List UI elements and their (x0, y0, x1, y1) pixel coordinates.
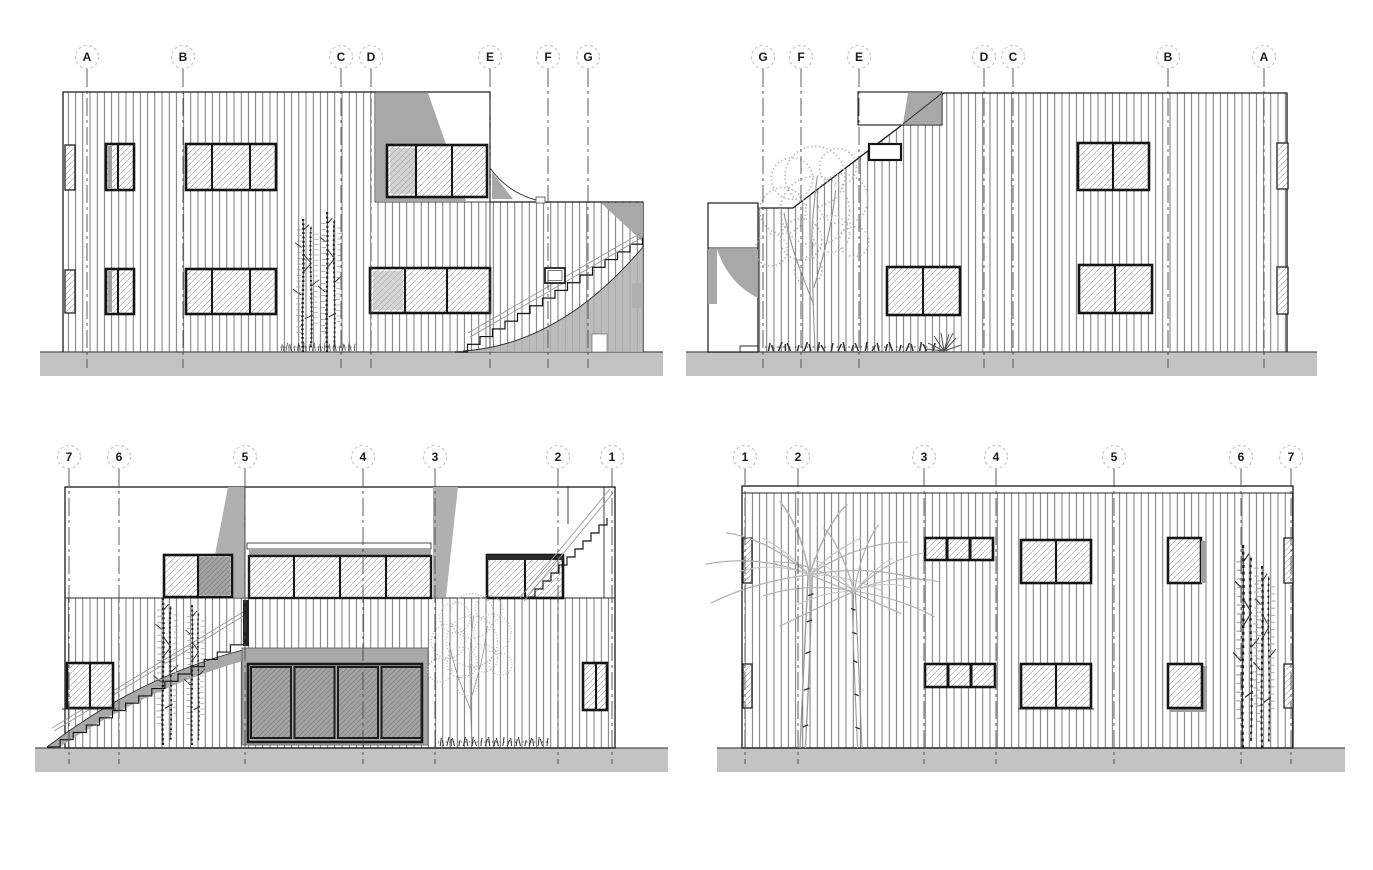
marker-label: A (83, 50, 92, 64)
marker-label: 4 (993, 450, 1000, 464)
window (1277, 267, 1288, 314)
window (925, 538, 993, 560)
marker-label: 5 (242, 450, 249, 464)
window (887, 267, 960, 315)
marker-label: E (486, 50, 494, 64)
marker-label: E (855, 50, 863, 64)
marker-label: 1 (742, 450, 749, 464)
marker-label: D (980, 50, 989, 64)
elevation-top-left: A B C D E F G (40, 46, 663, 377)
marker-label: F (544, 50, 551, 64)
window (1018, 664, 1094, 709)
elevation-top-right: G F E D C B A (686, 46, 1317, 377)
window (1284, 538, 1293, 583)
marker-label: 5 (1111, 450, 1118, 464)
marker-label: F (797, 50, 804, 64)
marker-label: C (1009, 50, 1018, 64)
window (1079, 265, 1152, 313)
elevation-bottom-left: 7 6 5 4 3 2 1 (35, 446, 668, 773)
marker-label: 3 (921, 450, 928, 464)
window (106, 269, 134, 314)
marker-label: 2 (555, 450, 562, 464)
window (1277, 143, 1288, 189)
marker-label: C (337, 50, 346, 64)
roof-edge-block (858, 92, 942, 125)
window (583, 663, 607, 710)
elevations-drawing: A B C D E F G (0, 0, 1373, 870)
window (387, 145, 487, 197)
marker-label: B (179, 50, 188, 64)
roof-notch (536, 197, 545, 203)
ground-band (686, 352, 1317, 376)
marker-label: 2 (795, 450, 802, 464)
marker-label: 1 (609, 450, 616, 464)
window (164, 555, 232, 597)
ground-band (35, 748, 668, 772)
marker-label: B (1164, 50, 1173, 64)
window (743, 664, 752, 708)
siding-wall (742, 493, 1293, 748)
elevation-sheet: A B C D E F G (0, 0, 1373, 870)
marker-label: 6 (1238, 450, 1245, 464)
wall-shadow (433, 487, 458, 597)
marker-label: G (758, 50, 767, 64)
slope-window (869, 144, 901, 160)
window (925, 664, 995, 687)
stair-enclosure (708, 203, 758, 352)
window (65, 270, 75, 313)
marker-label: 4 (360, 450, 367, 464)
window (370, 268, 490, 313)
marker-label: G (583, 50, 592, 64)
marker-label: 6 (116, 450, 123, 464)
ground-band (40, 352, 663, 376)
sliding-door (242, 648, 428, 745)
ground-band (717, 748, 1345, 772)
roof-shadow (492, 172, 513, 199)
window (186, 144, 276, 190)
window (1021, 540, 1091, 583)
window (106, 144, 134, 190)
window-band (247, 543, 431, 598)
window (1078, 143, 1149, 190)
window (65, 145, 75, 190)
marker-label: 3 (432, 450, 439, 464)
window (1168, 664, 1207, 712)
marker-label: 7 (66, 450, 73, 464)
siding-wall (63, 92, 643, 352)
marker-label: A (1260, 50, 1269, 64)
window (1168, 538, 1206, 583)
marker-label: 7 (1288, 450, 1295, 464)
elevation-bottom-right: 1 2 3 4 5 6 7 (706, 446, 1346, 773)
window (62, 663, 116, 709)
window (1284, 664, 1293, 708)
marker-label: D (367, 50, 376, 64)
window (186, 269, 276, 314)
siding-wall (758, 93, 1287, 352)
